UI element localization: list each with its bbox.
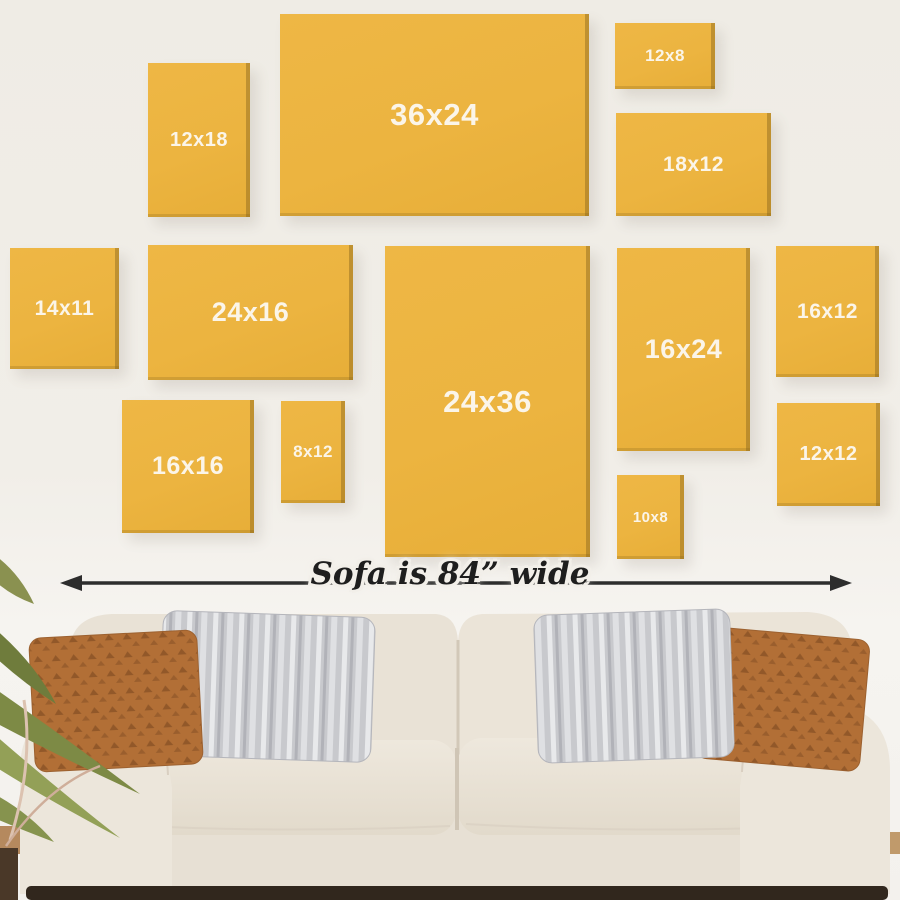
frame-size-label: 18x12	[663, 153, 724, 177]
frame-12x18: 12x18	[148, 63, 250, 217]
frame-size-label: 16x24	[645, 334, 723, 365]
frame-12x8: 12x8	[615, 23, 715, 89]
frame-size-label: 8x12	[293, 442, 333, 462]
wall-art-size-guide: 12x18 36x24 12x8 18x12 14x11 24x16 24x36…	[0, 0, 900, 900]
frame-size-label: 16x12	[797, 300, 858, 324]
frame-size-label: 12x8	[645, 46, 685, 66]
frame-14x11: 14x11	[10, 248, 119, 369]
canvas-frames: 12x18 36x24 12x8 18x12 14x11 24x16 24x36…	[0, 0, 900, 900]
frame-36x24: 36x24	[280, 14, 589, 216]
frame-size-label: 14x11	[35, 297, 95, 321]
frame-18x12: 18x12	[616, 113, 771, 216]
frame-24x16: 24x16	[148, 245, 353, 380]
frame-size-label: 24x36	[443, 384, 532, 420]
frame-12x12: 12x12	[777, 403, 880, 506]
frame-16x16: 16x16	[122, 400, 254, 533]
frame-size-label: 10x8	[633, 509, 668, 526]
frame-8x12: 8x12	[281, 401, 345, 503]
frame-24x36: 24x36	[385, 246, 590, 557]
frame-size-label: 24x16	[212, 297, 290, 328]
frame-10x8: 10x8	[617, 475, 684, 559]
frame-size-label: 16x16	[152, 452, 224, 481]
frame-size-label: 12x12	[799, 443, 857, 466]
frame-size-label: 12x18	[170, 129, 228, 152]
frame-size-label: 36x24	[390, 97, 479, 133]
frame-16x12: 16x12	[776, 246, 879, 377]
frame-16x24: 16x24	[617, 248, 750, 451]
